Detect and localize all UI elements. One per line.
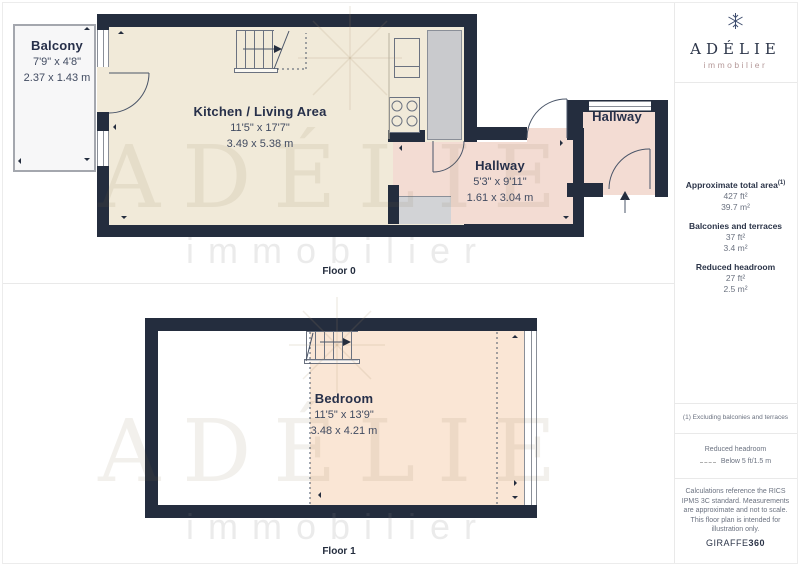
total-area-footnote-marker: (1): [778, 180, 785, 186]
room-label-bedroom: Bedroom 11'5" x 13'9" 3.48 x 4.21 m: [311, 390, 378, 439]
disclaimer-text: Calculations reference the RICS IPMS 3C …: [677, 487, 794, 535]
utility-shaft: [427, 30, 462, 140]
brand-tagline: immobilier: [674, 60, 797, 70]
floor-1-label: Floor 1: [322, 546, 355, 557]
total-area-label-text: Approximate total area: [686, 180, 778, 190]
credit-suffix: 360: [748, 538, 765, 548]
dimension-arrow-icon: [15, 158, 21, 164]
room-dim-metric: 1.61 x 3.04 m: [467, 190, 534, 206]
legend-row: Below 5 ft/1.5 m: [674, 458, 797, 465]
stair-landing: [234, 68, 278, 73]
room-name: Kitchen / Living Area: [193, 103, 326, 120]
dimension-arrow-icon: [84, 158, 90, 164]
room-dim-imperial: 5'3" x 9'11": [467, 174, 534, 190]
dimension-arrow-icon: [118, 28, 124, 34]
legend: Reduced headroom Below 5 ft/1.5 m: [674, 446, 797, 465]
dashed-line-icon: [700, 462, 716, 463]
sink: [394, 38, 420, 78]
balcony-door-opening: [97, 67, 109, 112]
total-area-metric: 39.7 m²: [674, 202, 797, 213]
reduced-headroom-label: Reduced headroom: [674, 262, 797, 273]
panel-section-divider: [674, 433, 797, 434]
room-label-balcony: Balcony 7'9" x 4'8" 2.37 x 1.43 m: [24, 37, 91, 86]
room-label-kitchen-living: Kitchen / Living Area 11'5" x 17'7" 3.49…: [193, 103, 326, 152]
dimension-arrow-icon: [84, 24, 90, 30]
dimension-arrow-icon: [512, 332, 518, 338]
brand-logo: ADÉLIE immobilier: [674, 12, 797, 70]
room-dim-metric: 3.49 x 5.38 m: [193, 136, 326, 152]
panel-section-divider: [674, 403, 797, 404]
room-dim-imperial: 11'5" x 13'9": [311, 407, 378, 423]
area-summary: Approximate total area(1) 427 ft² 39.7 m…: [674, 178, 797, 295]
stair-landing: [304, 359, 360, 364]
wall: [655, 112, 668, 197]
hallway2-threshold: [603, 183, 655, 195]
room-dim-metric: 2.37 x 1.43 m: [24, 70, 91, 86]
staircase: [236, 30, 274, 69]
panel-divider: [674, 3, 675, 563]
room-dim-imperial: 11'5" x 17'7": [193, 120, 326, 136]
room-dim-imperial: 7'9" x 4'8": [24, 54, 91, 70]
info-panel: ADÉLIE immobilier Approximate total area…: [674, 0, 797, 566]
legend-title: Reduced headroom: [674, 446, 797, 453]
reduced-headroom-metric: 2.5 m²: [674, 284, 797, 295]
window: [97, 30, 109, 67]
legend-item-label: Below 5 ft/1.5 m: [721, 458, 771, 465]
reduced-headroom-imperial: 27 ft²: [674, 273, 797, 284]
brand-name: ADÉLIE: [674, 40, 797, 58]
credit: GIRAFFE360: [674, 538, 797, 548]
panel-section-divider: [674, 478, 797, 479]
snowflake-icon: [727, 12, 744, 30]
balconies-metric: 3.4 m²: [674, 243, 797, 254]
watermark-tagline: immobilier: [186, 506, 490, 548]
total-area-label: Approximate total area(1): [674, 178, 797, 191]
footnote: (1) Excluding balconies and terraces: [674, 414, 797, 421]
room-name: Hallway: [592, 108, 642, 125]
sink-divider: [394, 66, 420, 67]
room-label-hallway2: Hallway: [592, 108, 642, 125]
floor-0-label: Floor 0: [322, 266, 355, 277]
room-name: Hallway: [467, 157, 534, 174]
floors-divider: [3, 283, 674, 284]
room-name: Balcony: [24, 37, 91, 54]
balconies-label: Balconies and terraces: [674, 221, 797, 232]
panel-section-divider: [674, 82, 797, 83]
room-dim-metric: 3.48 x 4.21 m: [311, 423, 378, 439]
total-area-imperial: 427 ft²: [674, 191, 797, 202]
balconies-imperial: 37 ft²: [674, 232, 797, 243]
floorplan-page: ADÉLIE immobilier ADÉLIE immobilier: [0, 0, 800, 566]
room-label-hallway: Hallway 5'3" x 9'11" 1.61 x 3.04 m: [467, 157, 534, 206]
room-name: Bedroom: [311, 390, 378, 407]
credit-brand: GIRAFFE: [706, 538, 749, 548]
staircase: [306, 331, 358, 361]
